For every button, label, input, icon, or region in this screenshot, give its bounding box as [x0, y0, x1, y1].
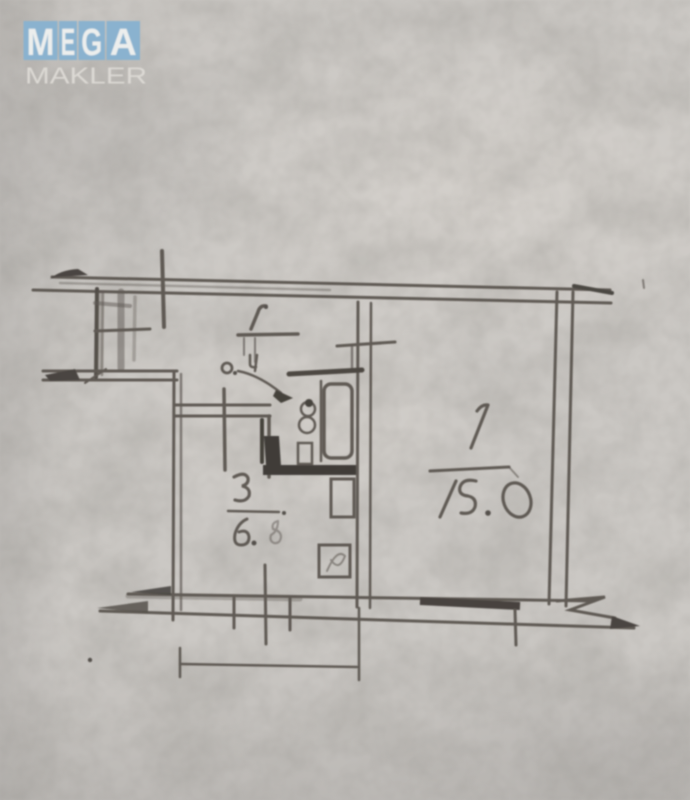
svg-text:G: G [81, 22, 102, 64]
svg-text:A: A [110, 22, 137, 64]
svg-text:E: E [61, 22, 76, 64]
svg-text:MAKLER: MAKLER [25, 63, 147, 89]
svg-text:M: M [27, 22, 55, 64]
